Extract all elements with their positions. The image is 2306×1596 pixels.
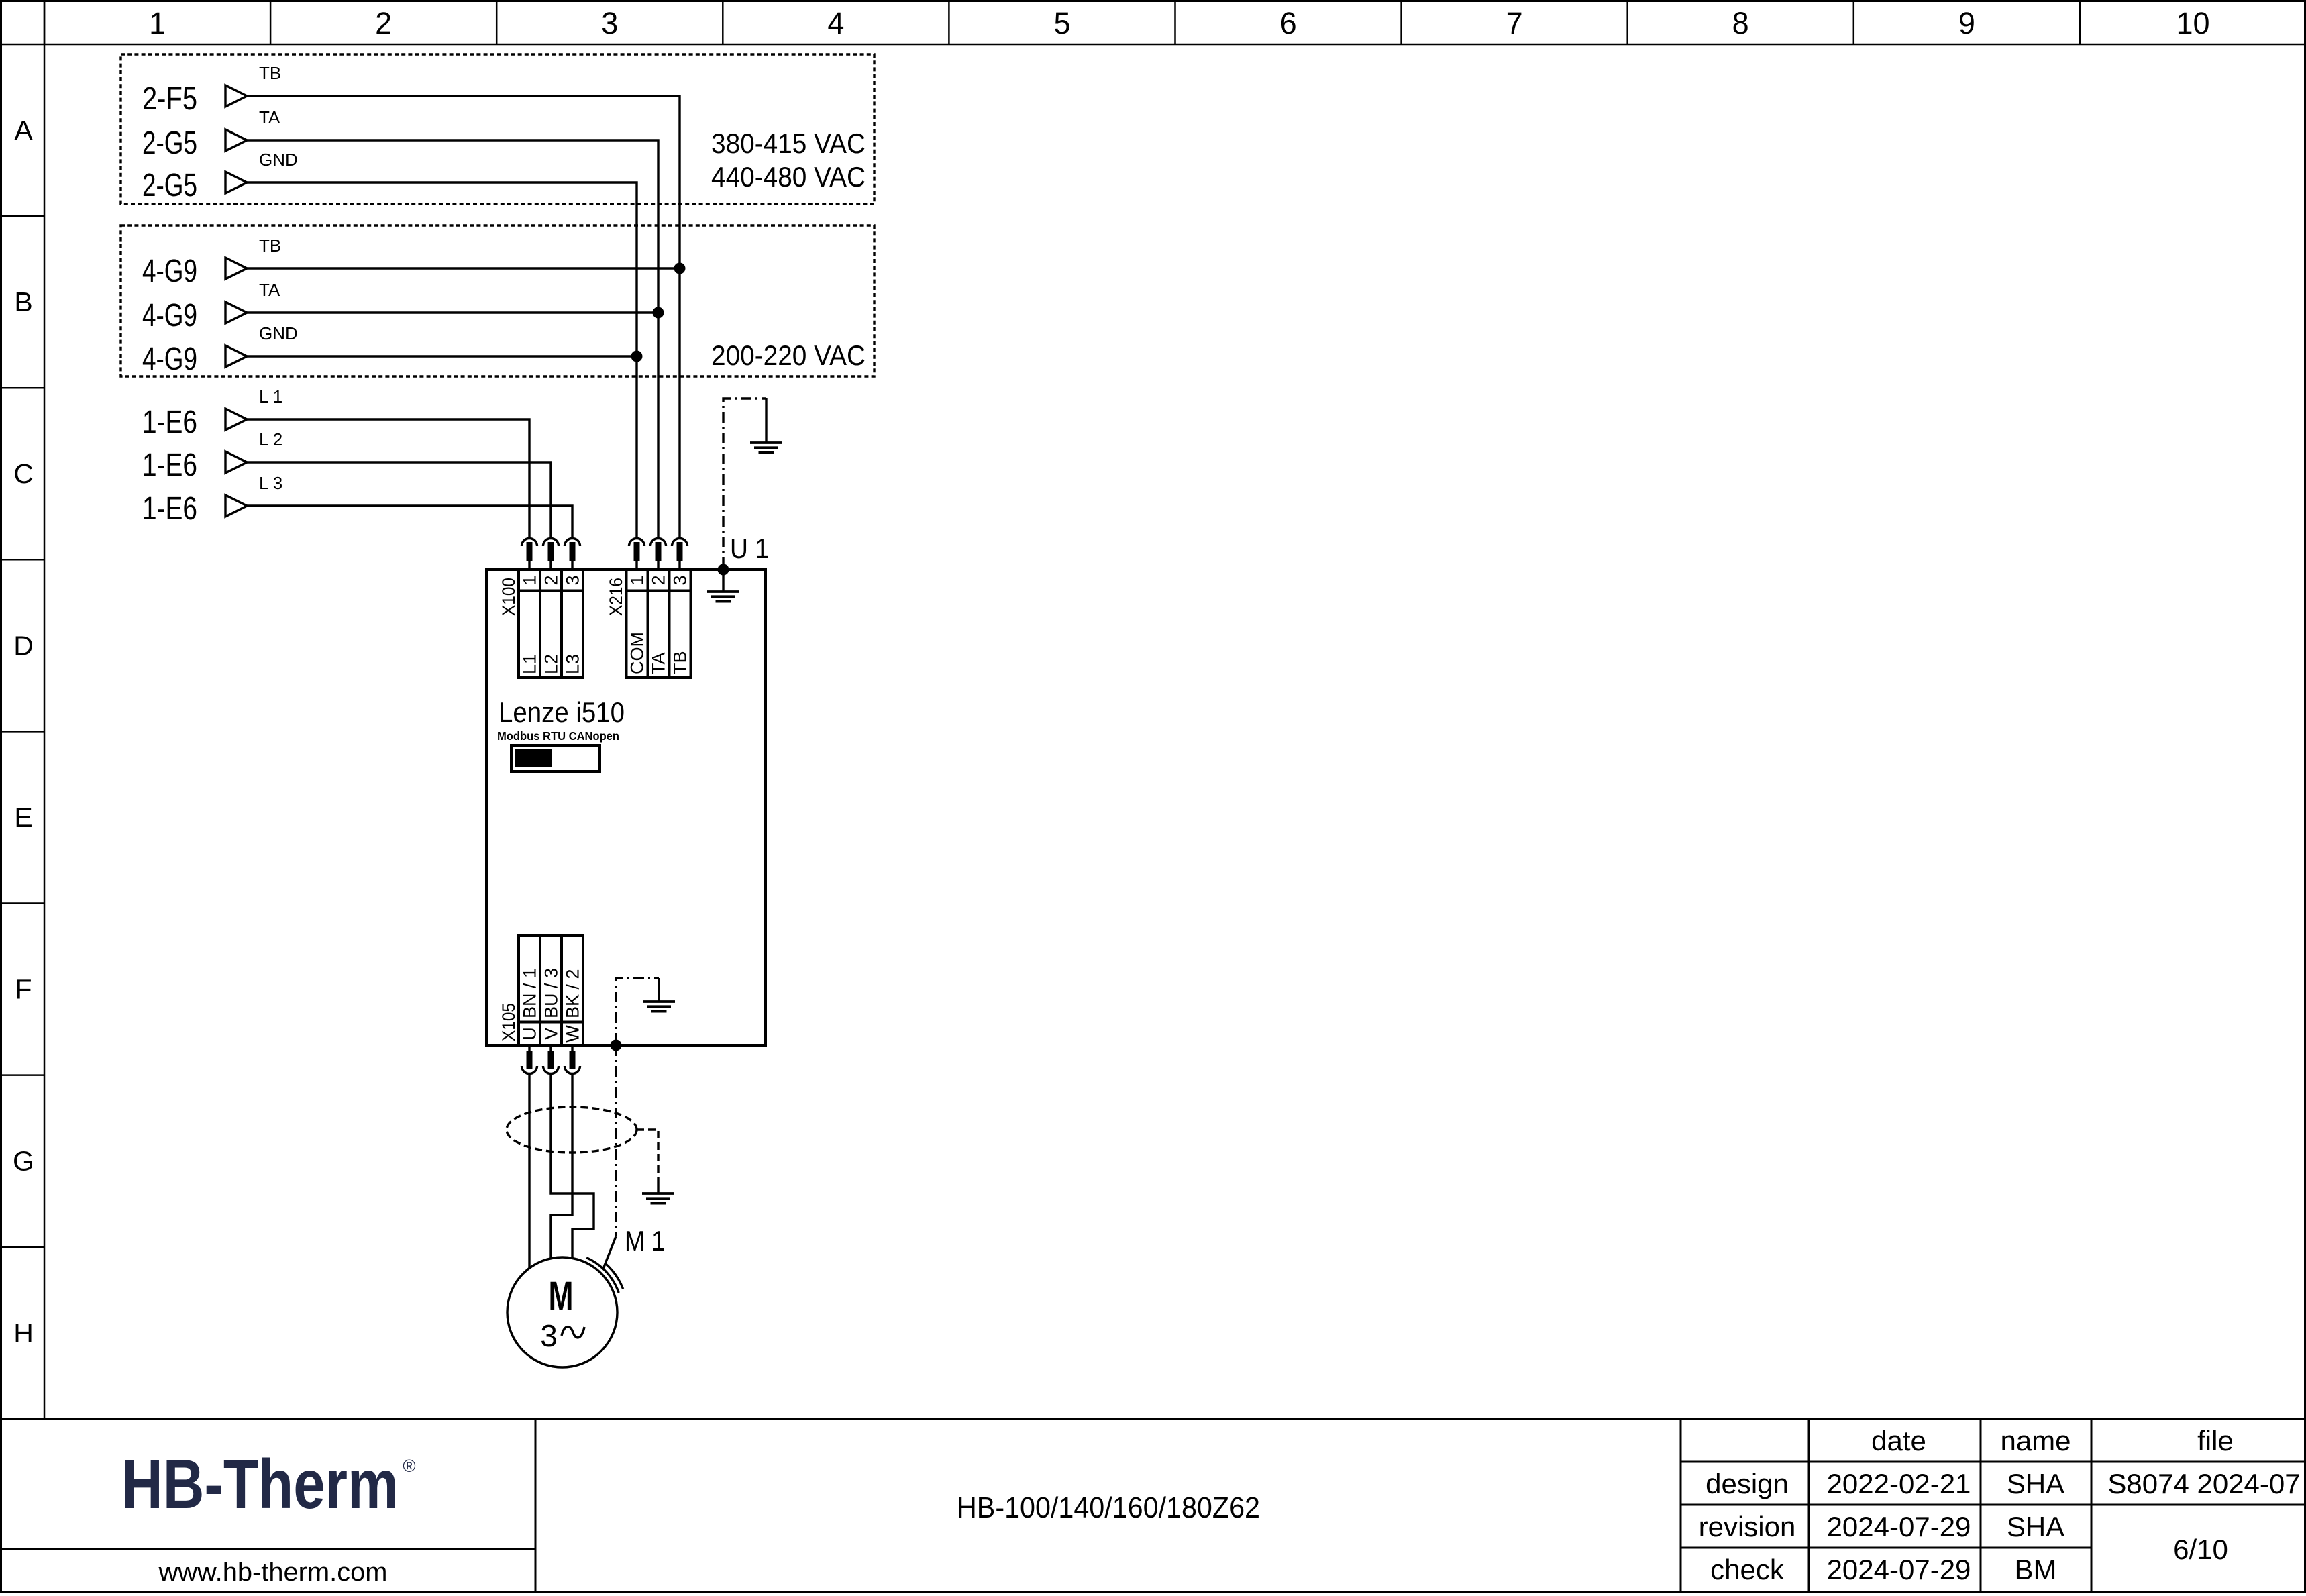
svg-text:GND: GND: [259, 150, 298, 170]
svg-text:BM: BM: [2015, 1554, 2057, 1585]
svg-text:8: 8: [1732, 6, 1749, 40]
svg-text:2-F5: 2-F5: [142, 81, 197, 117]
svg-text:www.hb-therm.com: www.hb-therm.com: [158, 1558, 387, 1587]
svg-text:D: D: [13, 630, 34, 661]
svg-text:L 1: L 1: [259, 386, 282, 407]
svg-text:L 3: L 3: [259, 473, 282, 493]
svg-text:380-415 VAC: 380-415 VAC: [711, 127, 866, 159]
svg-text:TB: TB: [259, 235, 281, 256]
svg-text:C: C: [13, 458, 34, 489]
svg-text:SHA: SHA: [2007, 1511, 2064, 1542]
svg-text:1: 1: [149, 6, 166, 40]
svg-text:440-480 VAC: 440-480 VAC: [711, 161, 866, 193]
svg-text:3: 3: [601, 6, 618, 40]
svg-text:9: 9: [1958, 6, 1975, 40]
svg-text:date: date: [1871, 1425, 1926, 1456]
svg-text:BU / 3: BU / 3: [541, 968, 562, 1018]
svg-text:2-G5: 2-G5: [142, 125, 197, 161]
svg-text:COM: COM: [627, 632, 647, 674]
svg-text:L2: L2: [541, 654, 562, 674]
svg-text:L3: L3: [563, 654, 583, 674]
svg-text:B: B: [14, 286, 32, 317]
svg-text:X216: X216: [606, 578, 626, 616]
svg-text:2024-07-29: 2024-07-29: [1827, 1554, 1971, 1585]
svg-text:2: 2: [649, 575, 669, 585]
svg-text:name: name: [2000, 1425, 2071, 1456]
svg-text:6: 6: [1280, 6, 1297, 40]
svg-text:4: 4: [827, 6, 844, 40]
svg-text:TB: TB: [259, 63, 281, 83]
svg-text:1-E6: 1-E6: [142, 447, 197, 483]
svg-text:®: ®: [403, 1456, 415, 1476]
svg-text:5: 5: [1053, 6, 1070, 40]
svg-text:Modbus RTU CANopen: Modbus RTU CANopen: [497, 729, 619, 743]
svg-text:H: H: [13, 1318, 34, 1348]
svg-text:W: W: [563, 1025, 583, 1043]
svg-text:file: file: [2197, 1425, 2234, 1456]
svg-text:1: 1: [520, 575, 540, 585]
svg-text:TA: TA: [259, 107, 280, 127]
svg-text:3: 3: [563, 575, 583, 585]
svg-text:3: 3: [540, 1318, 558, 1353]
svg-text:BK / 2: BK / 2: [563, 969, 583, 1018]
svg-text:HB-Therm: HB-Therm: [121, 1446, 399, 1524]
svg-text:Lenze i510: Lenze i510: [499, 696, 625, 728]
svg-text:HB-100/140/160/180Z62: HB-100/140/160/180Z62: [957, 1491, 1260, 1524]
svg-text:10: 10: [2176, 6, 2209, 40]
svg-text:2: 2: [541, 575, 562, 585]
svg-text:1-E6: 1-E6: [142, 491, 197, 527]
svg-text:2022-02-21: 2022-02-21: [1827, 1468, 1971, 1499]
svg-text:A: A: [14, 115, 33, 146]
svg-text:M: M: [549, 1273, 574, 1319]
svg-text:2024-07-29: 2024-07-29: [1827, 1511, 1971, 1542]
svg-text:M 1: M 1: [625, 1225, 665, 1257]
svg-text:X105: X105: [499, 1003, 519, 1041]
svg-text:6/10: 6/10: [2173, 1534, 2228, 1565]
svg-text:4-G9: 4-G9: [142, 254, 197, 289]
svg-text:GND: GND: [259, 323, 298, 343]
svg-text:S8074 2024-07: S8074 2024-07: [2107, 1468, 2300, 1499]
svg-text:1-E6: 1-E6: [142, 405, 197, 440]
svg-text:V: V: [541, 1028, 562, 1040]
svg-text:7: 7: [1506, 6, 1523, 40]
svg-text:4-G9: 4-G9: [142, 341, 197, 377]
svg-text:U: U: [520, 1027, 540, 1041]
svg-text:2: 2: [375, 6, 392, 40]
svg-text:F: F: [15, 974, 32, 1005]
svg-text:1: 1: [627, 575, 647, 585]
svg-text:3: 3: [670, 575, 690, 585]
svg-text:X100: X100: [499, 578, 519, 616]
svg-text:4-G9: 4-G9: [142, 298, 197, 333]
svg-text:U 1: U 1: [730, 533, 769, 564]
svg-text:TA: TA: [259, 280, 280, 300]
svg-text:E: E: [14, 802, 32, 833]
svg-text:BN / 1: BN / 1: [520, 968, 540, 1018]
svg-text:200-220 VAC: 200-220 VAC: [711, 339, 866, 371]
svg-text:2-G5: 2-G5: [142, 168, 197, 203]
svg-text:L 2: L 2: [259, 429, 282, 449]
svg-text:SHA: SHA: [2007, 1468, 2064, 1499]
svg-text:TA: TA: [649, 653, 669, 675]
svg-text:check: check: [1710, 1554, 1785, 1585]
svg-text:G: G: [13, 1146, 34, 1177]
svg-text:L1: L1: [520, 654, 540, 674]
svg-text:TB: TB: [670, 651, 690, 674]
svg-text:revision: revision: [1699, 1511, 1796, 1542]
svg-text:design: design: [1706, 1468, 1789, 1499]
